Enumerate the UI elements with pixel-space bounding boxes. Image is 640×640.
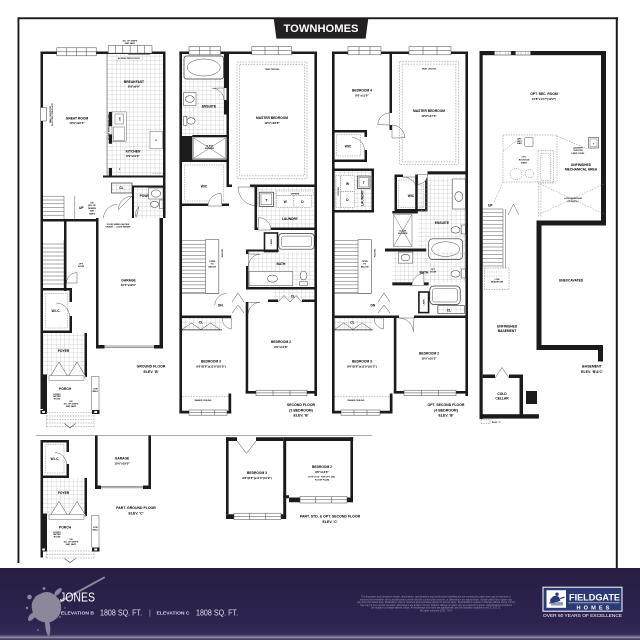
svg-text:10'0"x10'2": 10'0"x10'2" [421, 356, 437, 360]
svg-text:8'9"x11'0": 8'9"x11'0" [126, 154, 140, 158]
svg-text:LINEN: LINEN [271, 239, 273, 246]
svg-text:8'6"(8'8")x11'9"(10'2"): 8'6"(8'8")x11'9"(10'2") [347, 364, 377, 368]
svg-text:PART. GROUND FLOOR: PART. GROUND FLOOR [116, 506, 156, 510]
svg-text:ENSUITE: ENSUITE [435, 221, 450, 225]
svg-text:RAILING: RAILING [373, 248, 376, 257]
svg-text:DN: DN [218, 304, 223, 308]
svg-text:ELECTRIC FIREPLACE: ELECTRIC FIREPLACE [51, 103, 54, 126]
svg-text:GROUND FLOOR: GROUND FLOOR [137, 365, 166, 369]
svg-text:GLASS: GLASS [399, 230, 407, 233]
svg-text:FOYER: FOYER [58, 491, 70, 495]
svg-text:OVER 60 YEARS OF EXCELLENCE: OVER 60 YEARS OF EXCELLENCE [543, 613, 622, 619]
svg-text:1808 SQ. FT.: 1808 SQ. FT. [100, 609, 142, 618]
svg-text:TOWNHOMES: TOWNHOMES [284, 23, 359, 35]
svg-text:ELEV. 'B': ELEV. 'B' [294, 414, 309, 418]
svg-text:ELEV. 'C': ELEV. 'C' [323, 520, 338, 524]
svg-text:BEDROOM 3: BEDROOM 3 [247, 471, 267, 475]
svg-text:TO: TO [211, 264, 214, 266]
svg-text:LOW: LOW [495, 279, 500, 281]
svg-text:MASTER BEDROOM: MASTER BEDROOM [413, 109, 445, 113]
svg-text:DOOR: DOOR [78, 266, 85, 268]
svg-text:BASEMENT: BASEMENT [582, 365, 603, 369]
svg-text:All rights reserved 2023. 7/: All rights reserved 2023. 7/4 A [420, 610, 452, 613]
svg-text:DW: DW [120, 117, 122, 121]
svg-text:UNFINISHED: UNFINISHED [497, 325, 518, 329]
svg-text:VARY): VARY) [89, 212, 96, 215]
svg-text:W/C: W/C [201, 185, 208, 189]
svg-text:12'0"x18'8": 12'0"x18'8" [264, 121, 280, 125]
svg-text:MAY VARY: MAY VARY [66, 405, 77, 408]
svg-text:RAISED CEILING: RAISED CEILING [348, 399, 365, 402]
svg-text:LOW: LOW [93, 388, 98, 390]
svg-text:GRADE — CODE PERMIT: GRADE — CODE PERMIT [105, 226, 131, 229]
svg-text:NO. OF STEPS: NO. OF STEPS [64, 404, 79, 406]
svg-text:9'8"(8'8")x11'9"(10'9"): 9'8"(8'8")x11'9"(10'9") [242, 476, 272, 480]
svg-text:COLD: COLD [497, 392, 507, 396]
svg-text:BEDROOM 3: BEDROOM 3 [201, 360, 221, 364]
svg-text:DN: DN [371, 304, 376, 308]
svg-text:PORCH: PORCH [59, 387, 72, 391]
svg-text:LAUNDRY: LAUNDRY [573, 147, 584, 150]
svg-text:TO: TO [363, 264, 366, 266]
svg-text:OPT.: OPT. [79, 264, 84, 266]
svg-text:CELLAR: CELLAR [495, 397, 509, 401]
svg-text:MASTER BEDROOM: MASTER BEDROOM [256, 116, 288, 120]
svg-text:MECHANICAL AREA: MECHANICAL AREA [565, 168, 598, 172]
svg-text:(IF REQ'D.): (IF REQ'D.) [568, 201, 579, 203]
svg-text:BEDROOM 2: BEDROOM 2 [312, 465, 332, 469]
svg-text:MAY VARY: MAY VARY [66, 543, 77, 546]
svg-text:SHOWER: SHOWER [398, 233, 408, 235]
svg-text:|: | [149, 610, 151, 617]
svg-text:(4 BEDROOM): (4 BEDROOM) [434, 408, 458, 412]
svg-text:CL: CL [350, 320, 354, 324]
svg-text:HOMES: HOMES [576, 605, 612, 611]
svg-text:LOW: LOW [93, 527, 98, 529]
svg-text:TRAY CEILING: TRAY CEILING [265, 68, 280, 71]
svg-text:KITCHEN: KITCHEN [126, 150, 141, 154]
svg-text:RAILING: RAILING [221, 248, 224, 257]
svg-text:SHOWER: SHOWER [205, 148, 215, 150]
svg-text:CL: CL [199, 320, 203, 324]
svg-text:(3 BEDROOM): (3 BEDROOM) [289, 408, 313, 412]
svg-text:UNEXCAVATED: UNEXCAVATED [559, 279, 584, 283]
svg-text:FLOOR PLAN): FLOOR PLAN) [315, 478, 330, 481]
svg-text:BELOW: BELOW [361, 266, 369, 268]
svg-text:T: T [363, 181, 365, 185]
svg-text:BATH: BATH [521, 162, 527, 165]
svg-text:BATH: BATH [277, 262, 287, 266]
svg-text:GLASS: GLASS [206, 145, 214, 148]
svg-text:PORCH: PORCH [59, 526, 72, 530]
svg-text:3 PC.: 3 PC. [521, 157, 527, 159]
svg-text:TRAY CEILING: TRAY CEILING [422, 67, 437, 70]
svg-text:SECOND FLOOR: SECOND FLOOR [287, 403, 316, 407]
svg-text:ELEV. 'C': ELEV. 'C' [492, 422, 501, 424]
svg-text:MAY VARY: MAY VARY [125, 42, 136, 45]
svg-text:ROOM: ROOM [54, 398, 61, 400]
svg-text:OPT. REC. ROOM: OPT. REC. ROOM [530, 92, 558, 96]
svg-text:UPPERS: UPPERS [338, 187, 340, 196]
svg-text:8'6"x11'0": 8'6"x11'0" [355, 93, 369, 97]
svg-text:(NO. OF: (NO. OF [88, 205, 97, 207]
svg-text:ELEV. 'B': ELEV. 'B' [439, 414, 454, 418]
svg-text:10'6"x22'3": 10'6"x22'3" [69, 121, 85, 125]
svg-text:4 BED COND.: 4 BED COND. [571, 152, 585, 155]
svg-text:W.I.C.: W.I.C. [51, 457, 60, 461]
svg-text:DN: DN [90, 203, 94, 205]
svg-text:GARAGE: GARAGE [121, 279, 136, 283]
svg-text:WIC: WIC [408, 194, 415, 198]
svg-text:UPPERS: UPPERS [291, 193, 300, 195]
svg-text:W.I.C.: W.I.C. [52, 309, 61, 313]
svg-text:CL: CL [447, 309, 451, 313]
svg-text:DOOR: DOOR [430, 272, 437, 274]
svg-text:BEDROOM 2: BEDROOM 2 [271, 340, 291, 344]
svg-text:BREAKFAST: BREAKFAST [124, 80, 144, 84]
svg-text:(10'0"x10'2" FOR OPT. 2ND.: (10'0"x10'2" FOR OPT. 2ND. [308, 476, 336, 478]
svg-text:ELEV. 'C': ELEV. 'C' [129, 511, 144, 515]
svg-text:HEADROOM: HEADROOM [491, 281, 504, 284]
svg-text:NO. OF STEPS: NO. OF STEPS [64, 542, 79, 544]
svg-text:FIELDGATE: FIELDGATE [569, 591, 620, 602]
svg-text:T: T [265, 198, 267, 202]
svg-text:ENSUITE: ENSUITE [202, 105, 217, 109]
svg-text:BEDROOM 4: BEDROOM 4 [352, 89, 372, 93]
svg-text:OPEN: OPEN [209, 261, 215, 263]
svg-text:JONES: JONES [60, 590, 95, 605]
svg-text:UP: UP [488, 204, 493, 208]
svg-text:BASEMENT: BASEMENT [498, 329, 517, 333]
svg-text:GREAT ROOM: GREAT ROOM [66, 117, 89, 121]
svg-text:BEDROOM 3: BEDROOM 3 [352, 360, 372, 364]
svg-text:ELEV. 'B'&'C': ELEV. 'B'&'C' [581, 370, 603, 374]
svg-text:UNFINISHED: UNFINISHED [571, 163, 592, 167]
svg-text:9'6"x12'6": 9'6"x12'6" [315, 470, 329, 474]
svg-text:UP: UP [79, 206, 84, 210]
svg-text:DN: DN [69, 539, 73, 541]
svg-text:1808 SQ. FT.: 1808 SQ. FT. [196, 609, 238, 618]
svg-text:BELOW: BELOW [208, 266, 216, 268]
svg-text:9'6"x12'8": 9'6"x12'8" [274, 345, 288, 349]
svg-text:10'8"x17'0": 10'8"x17'0" [421, 114, 437, 118]
svg-text:WIC: WIC [345, 145, 352, 149]
svg-text:CL: CL [291, 294, 295, 298]
svg-text:9'8"(8'8")x11'9"(10'9"): 9'8"(8'8")x11'9"(10'9") [196, 364, 226, 368]
svg-text:CL: CL [119, 186, 123, 190]
svg-text:BAR: BAR [517, 142, 522, 145]
svg-text:FOYER: FOYER [58, 349, 70, 353]
svg-text:LOW HEADROOM: LOW HEADROOM [564, 197, 582, 200]
svg-text:BEDROOM 2: BEDROOM 2 [419, 352, 439, 356]
svg-text:DN: DN [69, 401, 73, 403]
svg-text:LAUNDRY: LAUNDRY [282, 217, 299, 221]
svg-text:10'0"x19'0": 10'0"x19'0" [121, 283, 137, 287]
svg-text:10'8"x14'7"(12'2"): 10'8"x14'7"(12'2") [532, 97, 556, 101]
svg-text:LAUNDRY: LAUNDRY [361, 189, 365, 206]
svg-text:10'0"x19'0": 10'0"x19'0" [114, 461, 130, 465]
svg-text:TUB FOR: TUB FOR [573, 150, 583, 152]
svg-text:ELEVATION B: ELEVATION B [61, 610, 95, 615]
svg-text:ELEVATION C: ELEVATION C [157, 610, 191, 615]
svg-text:ROUGH-IN: ROUGH-IN [519, 160, 530, 162]
svg-text:OPT. SECOND FLOOR: OPT. SECOND FLOOR [428, 403, 465, 407]
svg-text:RISERS: RISERS [88, 208, 96, 210]
svg-text:WALL: WALL [92, 390, 99, 393]
svg-text:GARAGE: GARAGE [115, 457, 130, 461]
svg-text:WALL: WALL [92, 529, 99, 532]
svg-text:PART. STD. & OPT. SECOND FLOOR: PART. STD. & OPT. SECOND FLOOR [300, 515, 361, 519]
svg-text:DOOR SWING SHOWN: DOOR SWING SHOWN [107, 224, 130, 226]
svg-text:RAISED CEILING: RAISED CEILING [195, 399, 212, 402]
svg-text:ROOM: ROOM [54, 536, 61, 538]
svg-text:ELEV. 'B': ELEV. 'B' [144, 370, 159, 374]
svg-text:8'9"x9'9": 8'9"x9'9" [128, 85, 141, 89]
svg-text:OPEN: OPEN [362, 261, 368, 263]
svg-text:LINEN: LINEN [424, 299, 426, 306]
svg-text:MAY: MAY [90, 210, 95, 213]
svg-text:OPT.: OPT. [431, 269, 436, 271]
